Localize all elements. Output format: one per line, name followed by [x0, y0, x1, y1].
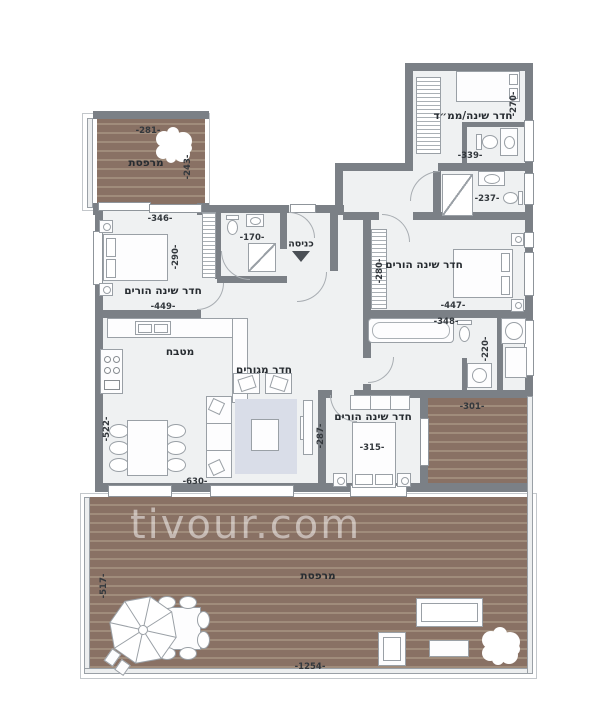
wall — [330, 213, 338, 271]
dimension-label: -287- — [316, 424, 326, 449]
bathroom-sink — [478, 171, 505, 186]
dimension-label: -339- — [458, 151, 483, 161]
bathroom-sink — [500, 128, 518, 156]
tv-screen — [300, 416, 304, 440]
oven — [104, 380, 120, 390]
armchair — [265, 373, 292, 394]
nightstand — [333, 473, 347, 487]
toilet — [459, 326, 470, 342]
outdoor-lounge-chair — [378, 632, 406, 666]
lamp — [515, 236, 522, 243]
wall — [217, 276, 287, 283]
wall — [95, 310, 201, 318]
pillow — [501, 276, 510, 295]
outdoor-side-table — [429, 640, 469, 657]
nightstand — [99, 220, 113, 233]
dimension-label: -346- — [148, 214, 173, 224]
dining-chair — [166, 441, 186, 455]
window — [524, 232, 534, 248]
dimension-label: -315- — [360, 443, 385, 453]
room-label-bedroom-bottom: חדר שינה הורים — [334, 411, 412, 423]
room-label-living: חדר מגורים — [236, 364, 292, 376]
dimension-label: -522- — [102, 417, 112, 442]
sink-bowl — [484, 174, 500, 184]
entrance-arrow-icon — [292, 251, 310, 262]
pillow — [355, 474, 373, 485]
outdoor-bench — [416, 598, 483, 627]
window — [93, 231, 103, 285]
sink-basin — [138, 324, 152, 333]
toilet — [518, 191, 523, 205]
dimension-label: -237- — [475, 194, 500, 204]
room-label-balcony-top: מרפסת — [128, 157, 163, 169]
room-label-bedroom-right: חדר שינה הורים — [385, 259, 463, 271]
laundry-sink — [501, 318, 526, 344]
sliding-door — [98, 202, 151, 211]
railing — [87, 118, 93, 208]
wall — [280, 205, 287, 249]
lamp — [103, 286, 111, 294]
dining-chair — [109, 424, 129, 438]
pillow — [375, 474, 393, 485]
counter — [505, 347, 527, 378]
tv-console — [303, 400, 313, 455]
toilet — [503, 192, 518, 204]
wall — [316, 205, 344, 213]
dimension-label: -280- — [375, 259, 385, 284]
cushion — [237, 375, 256, 392]
burner — [104, 367, 111, 374]
dimension-label: -270- — [509, 92, 519, 117]
chair-cushion — [383, 637, 401, 661]
lamp — [103, 223, 111, 231]
plant — [486, 632, 514, 660]
toilet — [482, 135, 498, 149]
dimension-label: -447- — [441, 301, 466, 311]
window — [524, 120, 534, 162]
dimension-label: -290- — [171, 245, 181, 270]
bathroom-sink — [246, 214, 264, 227]
wall — [405, 63, 413, 171]
dimension-label: -220- — [481, 337, 491, 362]
lamp — [337, 477, 345, 485]
lamp — [401, 477, 409, 485]
sofa — [206, 396, 232, 478]
window — [108, 485, 172, 497]
washer-drum — [472, 368, 487, 383]
bed — [352, 422, 396, 488]
pillow — [509, 74, 518, 85]
window — [210, 485, 294, 497]
wall — [420, 390, 533, 398]
wall — [462, 122, 524, 127]
burner — [113, 367, 120, 374]
shower — [442, 174, 473, 216]
room-label-balcony-main: מרפסת — [300, 570, 335, 582]
room-label-kitchen: מטבח — [166, 346, 194, 358]
dining-chair — [166, 458, 186, 472]
window — [524, 252, 534, 296]
dimension-label: -170- — [240, 233, 265, 243]
coffee-table — [251, 419, 279, 451]
dimension-label: -517- — [99, 574, 109, 599]
watermark: tivour.com — [130, 502, 361, 548]
bench-top — [421, 603, 478, 622]
railing — [527, 396, 533, 674]
sink-basin — [154, 324, 168, 333]
shower — [248, 243, 276, 272]
dimension-label: -301- — [460, 402, 485, 412]
dimension-label: -630- — [183, 477, 208, 487]
room-label-bedroom-left: חדר שינה הורים — [124, 285, 202, 297]
patio-umbrella — [99, 586, 187, 674]
railing — [84, 497, 90, 674]
pillow — [501, 253, 510, 272]
room-label-entrance: כניסה — [288, 239, 313, 250]
nightstand — [99, 283, 113, 296]
dimension-label: -243- — [183, 155, 193, 180]
cushion — [269, 375, 288, 392]
dining-chair — [109, 458, 129, 472]
stove — [100, 349, 123, 394]
closet — [202, 212, 216, 278]
wall — [205, 205, 289, 213]
dimension-label: -348- — [434, 317, 459, 327]
bed — [103, 234, 168, 281]
toilet — [227, 220, 238, 235]
kitchen-sink — [135, 321, 171, 335]
bed — [453, 249, 513, 298]
wall — [413, 212, 533, 220]
floor-plan: חדר שינה/ממ״ד מרפסת חדר שינה הורים כניסה… — [0, 0, 610, 706]
room-label-safe-room: חדר שינה/ממ״ד — [433, 110, 512, 122]
pillow — [106, 238, 116, 257]
window — [524, 173, 534, 205]
outdoor-chair — [197, 631, 210, 649]
dining-table — [127, 420, 168, 476]
burner — [113, 356, 120, 363]
pillow — [106, 259, 116, 278]
nightstand — [397, 473, 411, 487]
wall — [93, 111, 209, 119]
pillow — [208, 459, 225, 476]
pillow — [208, 398, 225, 415]
armchair — [233, 373, 260, 394]
dimension-label: -449- — [151, 302, 176, 312]
washing-machine — [467, 363, 492, 388]
wall — [363, 220, 371, 320]
dresser — [350, 395, 410, 410]
wall — [343, 212, 379, 220]
outdoor-chair — [197, 611, 210, 629]
wall — [405, 63, 533, 71]
window — [420, 418, 429, 466]
wall — [438, 163, 533, 171]
outdoor-chair — [179, 596, 197, 609]
dining-chair — [166, 424, 186, 438]
sink-bowl — [504, 136, 515, 149]
dimension-label: -281- — [136, 126, 161, 136]
lamp — [515, 302, 522, 309]
sink-bowl — [250, 217, 261, 225]
sink-bowl — [505, 322, 523, 340]
dining-chair — [109, 441, 129, 455]
nightstand — [511, 299, 524, 312]
dimension-label: -1254- — [295, 662, 326, 672]
nightstand — [511, 233, 524, 246]
toilet — [457, 320, 472, 325]
wall — [335, 163, 410, 171]
burner — [104, 356, 111, 363]
sliding-door — [149, 204, 202, 213]
